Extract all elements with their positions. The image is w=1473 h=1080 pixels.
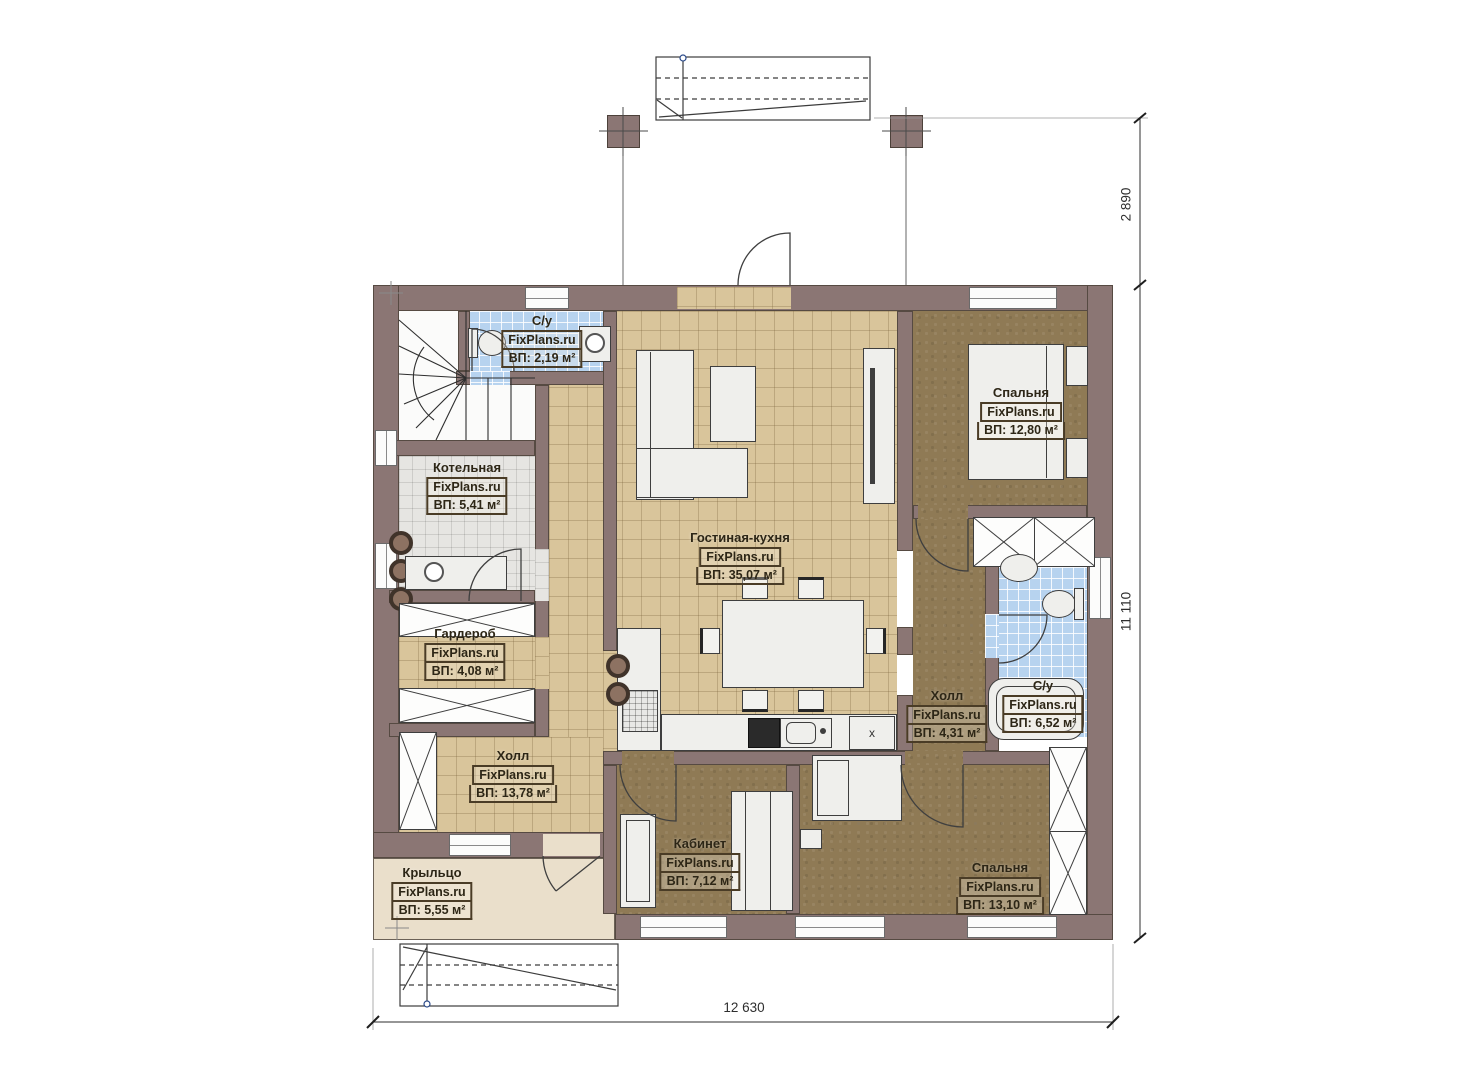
wall-living-right-upper [897,311,913,551]
room-area: ВП: 13,10 м² [956,897,1044,915]
wardrobe-cell [1050,831,1086,915]
brand-watermark: FixPlans.ru [699,547,780,567]
floor-plan-canvas: x [0,0,1473,1080]
dimension-house-width: 12 630 [704,1000,784,1015]
room-area: ВП: 4,08 м² [425,663,506,681]
dimension-terrace-height: 2 890 [1119,170,1134,240]
bedroom-bottom-door-opening [905,751,963,765]
room-name: Гостиная-кухня [690,530,790,545]
room-name: С/у [1033,678,1053,693]
room-area: ВП: 6,52 м² [1003,715,1084,733]
window-hall-porch [449,834,511,856]
nightstand-bottom [800,829,822,849]
boiler-sink-icon [424,562,444,582]
room-name: Спальня [972,860,1028,875]
room-area: ВП: 5,55 м² [392,902,473,920]
wall-office-left [603,765,617,914]
room-name: Спальня [993,385,1049,400]
terrace-column-left [607,115,640,148]
office-sofa-line-1 [745,792,746,910]
window-bottom-bedroom-2 [967,916,1057,938]
wall-kitchen-left [603,311,617,651]
door-terrace [738,233,790,285]
room-label-hall-right: Холл FixPlans.ru ВП: 4,31 м² [906,688,987,743]
wardrobe-cell [400,689,534,722]
brand-watermark: FixPlans.ru [906,705,987,725]
dimension-house-height: 11 110 [1119,572,1134,652]
bedroom-top-door-opening [918,505,968,519]
wall-stair-boiler [389,440,535,456]
office-sofa-line-2 [770,792,771,910]
chair-top-2 [798,577,824,599]
brand-watermark: FixPlans.ru [472,765,553,785]
room-name: Крыльцо [402,865,461,880]
boiler-counter [405,556,507,590]
dishwasher-marker: x [869,726,875,740]
room-name: Котельная [433,460,501,475]
terrace-outline [623,148,906,285]
brand-watermark: FixPlans.ru [391,882,472,902]
wardrobe-room-unit-bottom [399,688,535,723]
hall-left-wardrobe [399,732,437,830]
chair-right [866,628,886,654]
brand-watermark: FixPlans.ru [426,477,507,497]
dining-table [722,600,864,688]
sofa-back-line [650,352,651,498]
room-name: С/у [532,313,552,328]
wardrobe-cell [1034,518,1095,566]
window-top-bedroom [969,287,1057,309]
brand-watermark: FixPlans.ru [1002,695,1083,715]
nightstand-top-1 [1066,346,1088,386]
window-bottom-bedroom-1 [795,916,885,938]
room-label-bedroom-bottom: Спальня FixPlans.ru ВП: 13,10 м² [956,860,1044,915]
boiler-tank-icon-1 [389,531,413,555]
wardrobe-opening [535,637,549,689]
room-label-kotelnaya: Котельная FixPlans.ru ВП: 5,41 м² [426,460,507,515]
room-name: Кабинет [674,836,727,851]
column-axis-ticks [599,107,931,156]
brand-watermark: FixPlans.ru [980,402,1061,422]
room-label-living-kitchen: Гостиная-кухня FixPlans.ru ВП: 35,07 м² [690,530,790,585]
porch-door-opening [543,834,600,856]
wardrobe-bedroom-bottom [1049,747,1087,915]
room-area: ВП: 4,31 м² [907,725,988,743]
brand-watermark: FixPlans.ru [959,877,1040,897]
coffee-table [710,366,756,442]
room-label-garderob: Гардероб FixPlans.ru ВП: 4,08 м² [424,626,505,681]
room-area: ВП: 13,78 м² [469,785,557,803]
room-label-su-top: С/у FixPlans.ru ВП: 2,19 м² [501,313,582,368]
room-area: ВП: 7,12 м² [660,873,741,891]
room-area: ВП: 12,80 м² [977,422,1065,440]
window-bottom-office [640,916,727,938]
washing-machine-drum-icon [585,333,605,353]
room-name: Холл [497,748,530,763]
room-label-hall-left: Холл FixPlans.ru ВП: 13,78 м² [469,748,557,803]
room-label-su-right: С/у FixPlans.ru ВП: 6,52 м² [1002,678,1083,733]
room-area: ВП: 5,41 м² [427,497,508,515]
faucet-icon [820,728,826,734]
wall-living-right-pier [897,627,913,655]
toilet-tank-top [468,328,478,358]
room-area: ВП: 35,07 м² [696,567,784,585]
room-area: ВП: 2,19 м² [502,350,583,368]
room-label-bedroom-top: Спальня FixPlans.ru ВП: 12,80 м² [977,385,1065,440]
terrace-column-right [890,115,923,148]
terrace-door-opening [677,287,791,309]
sofa-chaise [636,448,748,498]
sink-right-icon [1000,554,1038,582]
kitchen-sink-basin [786,722,816,744]
cooktop-burner-icon-1 [606,654,630,678]
bathroom-top-door-opening [470,371,510,385]
bed-bottom-pillow [817,760,849,816]
desk-inner [626,820,650,902]
exterior-steps-bottom [400,944,618,1007]
stove-icon [748,718,780,748]
room-name: Холл [931,688,964,703]
tv-icon [870,368,875,484]
office-door-opening [622,751,674,765]
brand-watermark: FixPlans.ru [501,330,582,350]
window-left-boiler-1 [375,430,397,466]
bathroom-right-door-opening [985,614,999,658]
room-label-kryltso: Крыльцо FixPlans.ru ВП: 5,55 м² [391,865,472,920]
wardrobe-cell [1050,748,1086,831]
exterior-stairs-top [656,55,870,120]
room-label-kabinet: Кабинет FixPlans.ru ВП: 7,12 м² [659,836,740,891]
chair-bottom-1 [742,690,768,712]
dishwasher-cabinet: x [849,716,895,750]
nightstand-top-2 [1066,438,1088,478]
boiler-door-opening [535,549,549,601]
chair-bottom-2 [798,690,824,712]
toilet-tank-right [1074,588,1084,620]
cooktop-burner-icon-2 [606,682,630,706]
brand-watermark: FixPlans.ru [424,643,505,663]
tv-stand [863,348,895,504]
brand-watermark: FixPlans.ru [659,853,740,873]
room-name: Гардероб [434,626,495,641]
wardrobe-cell [400,733,436,829]
chair-left [700,628,720,654]
toilet-right-icon [1042,590,1076,618]
window-top-bathroom [525,287,569,309]
